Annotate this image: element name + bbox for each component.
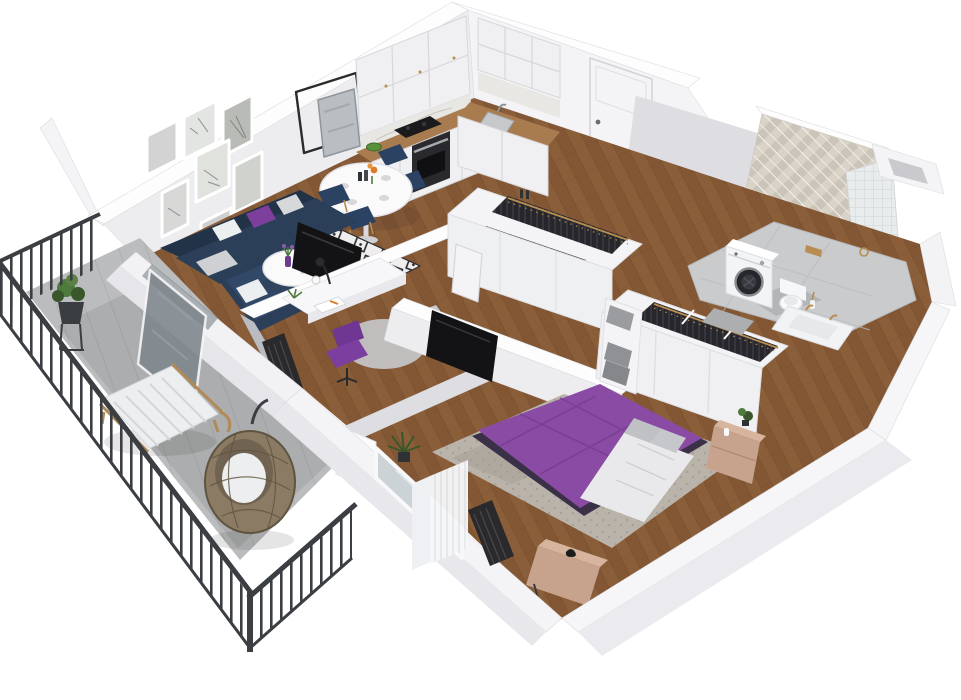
leaning-mirror xyxy=(318,89,360,157)
sheer-curtain xyxy=(430,460,468,564)
west-exterior-wall xyxy=(40,118,104,226)
door-handle xyxy=(596,120,601,125)
floorplan-render xyxy=(0,0,961,700)
sheer-curtain-fold xyxy=(412,476,430,570)
hall-interior-door xyxy=(452,244,482,302)
nightstand-vase xyxy=(724,428,729,436)
apartment-isometric-svg xyxy=(0,0,961,700)
green-bowl xyxy=(367,143,382,151)
